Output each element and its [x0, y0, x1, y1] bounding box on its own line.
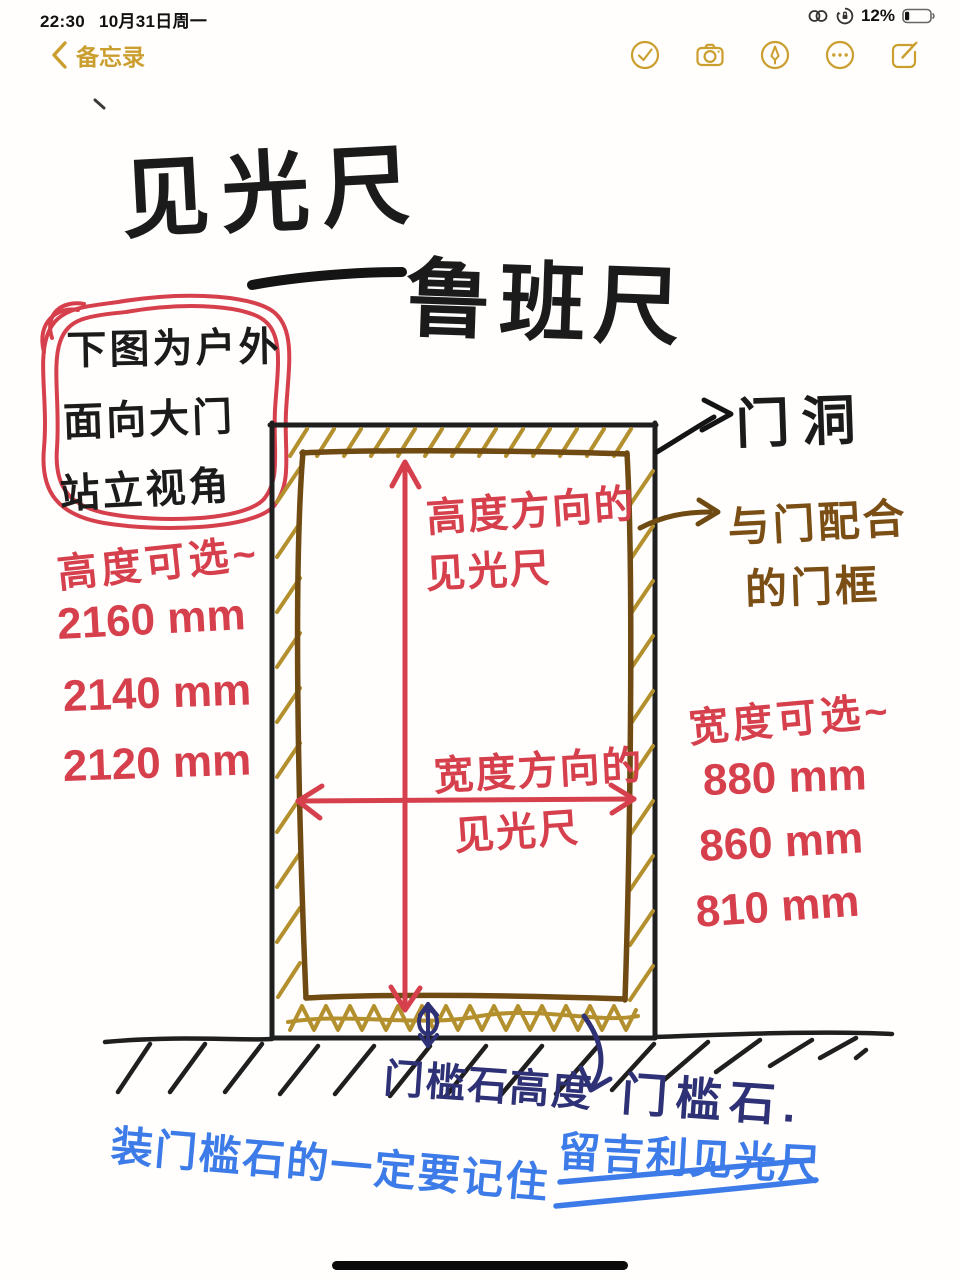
camera-button[interactable]: [691, 36, 729, 74]
height-option-2: 2140 mm: [62, 665, 252, 722]
width-option-1: 880 mm: [702, 750, 868, 806]
note-title-line2: 鲁班尺: [404, 228, 690, 363]
back-label: 备忘录: [76, 38, 145, 72]
height-option-3: 2120 mm: [62, 735, 252, 792]
status-bar: 22:3010月31日周一 12%: [0, 0, 960, 32]
camera-icon: [693, 38, 727, 72]
checklist-button[interactable]: [626, 36, 664, 74]
back-button[interactable]: 备忘录: [50, 38, 145, 72]
door-opening-arrow: [657, 400, 731, 452]
compose-button[interactable]: [886, 36, 924, 74]
status-date: 10月31日周一: [99, 12, 207, 31]
door-frame-arrow: [640, 500, 718, 528]
home-indicator[interactable]: [332, 1261, 628, 1270]
width-arrow-label-line1: 宽度方向的: [432, 733, 645, 802]
door-opening-label: 门洞: [734, 375, 869, 459]
status-left: 22:3010月31日周一: [40, 7, 207, 32]
orientation-lock-icon: [836, 7, 854, 25]
stray-mark: [95, 100, 104, 108]
circled-note-line1: 下图为户外: [66, 314, 282, 376]
note-title-line1: 见光尺: [118, 114, 424, 257]
clock: 22:30: [40, 12, 85, 31]
door-frame-label-line2: 的门框: [744, 551, 881, 617]
height-arrow-label-line2: 见光尺: [424, 535, 553, 600]
width-option-2: 860 mm: [698, 813, 864, 872]
battery-percent: 12%: [861, 6, 895, 26]
chevron-left-icon: [50, 40, 68, 70]
more-icon: [823, 38, 857, 72]
markup-icon: [758, 38, 792, 72]
width-arrow-label-line2: 见光尺: [452, 795, 582, 862]
height-option-1: 2160 mm: [56, 590, 247, 650]
more-button[interactable]: [821, 36, 859, 74]
circled-note-line2: 面向大门: [62, 384, 236, 448]
nav-actions: [626, 36, 924, 74]
notes-app-screen: 22:3010月31日周一 12%: [0, 0, 960, 1280]
checklist-icon: [628, 38, 662, 72]
door-frame-label-line1: 与门配合: [726, 485, 909, 555]
markup-button[interactable]: [756, 36, 794, 74]
status-right: 12%: [807, 6, 936, 26]
circled-note-line3: 站立视角: [58, 453, 233, 520]
personal-hotspot-icon: [807, 8, 829, 24]
title-dash: [252, 272, 402, 285]
height-dimension-arrow: [391, 462, 420, 1010]
note-canvas[interactable]: 见光尺 鲁班尺 下图为户外 面向大门 站立视角 高度可选~ 2160 mm 21…: [0, 76, 960, 1246]
nav-bar: 备忘录: [0, 34, 960, 76]
compose-icon: [888, 38, 922, 72]
battery-icon: [902, 8, 936, 24]
